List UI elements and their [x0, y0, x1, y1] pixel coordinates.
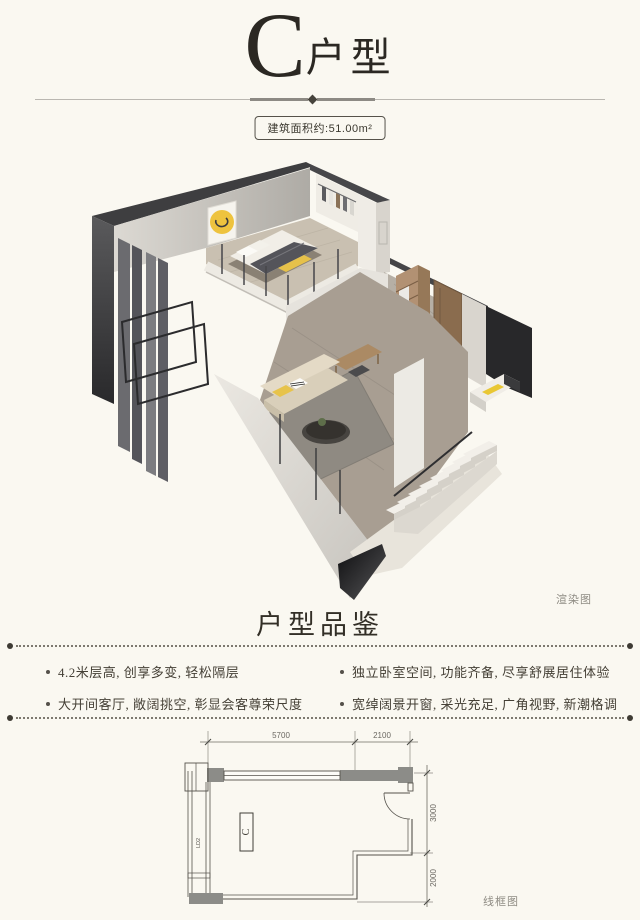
divider-bar-left — [250, 98, 308, 101]
feature-item: 宽绰阔景开窗, 采光充足, 广角视野, 新潮格调 — [340, 694, 618, 713]
column — [189, 893, 223, 904]
feature-item: 独立卧室空间, 功能齐备, 尽享舒展居住体验 — [340, 662, 610, 681]
bullet-icon — [340, 670, 344, 674]
bullet-icon — [46, 702, 50, 706]
curtain-wall — [92, 216, 208, 482]
dim-top-left: 5700 — [272, 731, 290, 740]
divider-end-dot — [627, 643, 633, 649]
divider-bar-right — [317, 98, 375, 101]
right-dimension-line: 3000 2000 — [424, 765, 438, 907]
dim-right-lower: 2000 — [429, 869, 438, 887]
divider-end-dot — [627, 715, 633, 721]
features-title: 户型品鉴 — [0, 603, 640, 642]
divider-end-dot — [7, 715, 13, 721]
stair-wall — [394, 358, 424, 488]
divider-diamond-icon — [308, 95, 318, 105]
dotted-line — [16, 645, 624, 647]
dotted-divider-bottom — [7, 715, 633, 721]
feature-item: 大开间客厅, 敞阔挑空, 彰显会客尊荣尺度 — [46, 694, 303, 713]
bay-window — [185, 763, 210, 897]
brochure-page: C 户型 建筑面积约:51.00m² — [0, 0, 640, 920]
feature-text: 独立卧室空间, 功能齐备, 尽享舒展居住体验 — [352, 662, 610, 681]
page-title: C 户型 — [0, 8, 640, 83]
unit-label-box: C — [240, 813, 253, 851]
unit-label: C — [241, 828, 252, 835]
feature-item: 4.2米层高, 创享多变, 轻松隔层 — [46, 662, 239, 681]
bullet-icon — [340, 702, 344, 706]
divider-wall — [358, 194, 390, 274]
yellow-circle-artwork — [208, 201, 236, 245]
title-divider — [35, 96, 605, 104]
unit-letter: C — [244, 8, 305, 83]
bullet-icon — [46, 670, 50, 674]
dotted-line — [16, 717, 624, 719]
floorplan-drawing: 5700 2100 3000 2000 — [170, 725, 470, 915]
plan-walls: C LD2 — [185, 763, 413, 904]
divider-end-dot — [7, 643, 13, 649]
render-illustration — [88, 152, 532, 604]
feature-text: 大开间客厅, 敞阔挑空, 彰显会客尊荣尺度 — [58, 694, 303, 713]
entry-door — [384, 783, 413, 819]
window-tag: LD2 — [196, 838, 202, 848]
column — [207, 768, 224, 782]
top-dimension-line: 5700 2100 — [200, 731, 418, 745]
dotted-divider-top — [7, 643, 633, 649]
area-badge: 建筑面积约:51.00m² — [255, 116, 386, 140]
dim-top-right: 2100 — [373, 731, 391, 740]
feature-text: 宽绰阔景开窗, 采光充足, 广角视野, 新潮格调 — [352, 694, 618, 713]
dim-right-upper: 3000 — [429, 804, 438, 822]
floorplan-caption: 线框图 — [483, 893, 519, 909]
unit-type-suffix: 户型 — [306, 38, 396, 83]
wall-segment — [340, 770, 398, 781]
feature-text: 4.2米层高, 创享多变, 轻松隔层 — [58, 662, 239, 681]
column — [398, 767, 413, 783]
glass-frame — [134, 324, 208, 404]
